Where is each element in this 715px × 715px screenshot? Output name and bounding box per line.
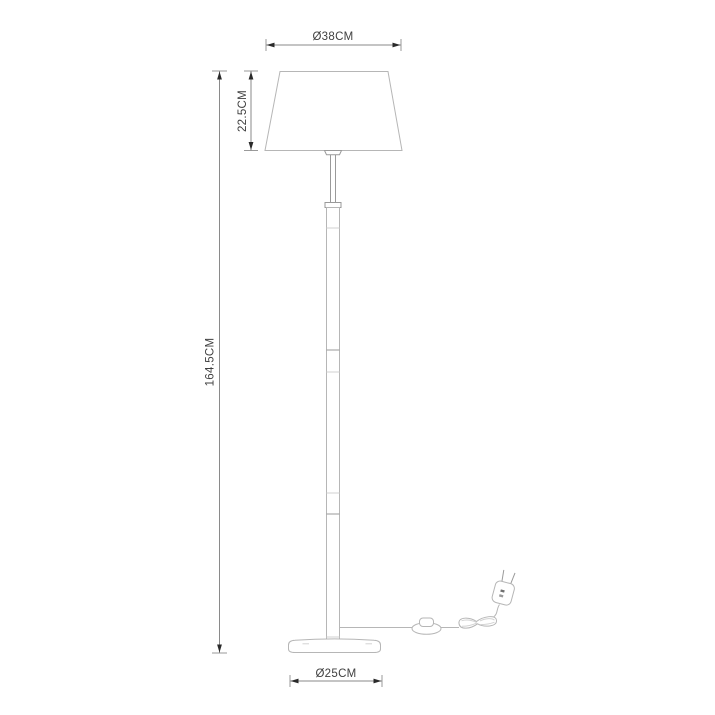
pole	[325, 203, 341, 641]
arrow-left-icon	[291, 679, 299, 684]
stem-rod	[331, 155, 336, 203]
lamp-height-label: 164.5CM	[205, 338, 217, 387]
power-plug	[491, 569, 519, 606]
arrow-down-icon	[217, 645, 222, 653]
lamp-base	[289, 639, 381, 653]
base-diameter-label: Ø25CM	[315, 668, 356, 680]
dimension-base-diameter: Ø25CM	[290, 668, 382, 687]
pole-body	[327, 208, 340, 641]
floor-lamp-drawing	[265, 72, 518, 653]
plug-prong-right	[511, 573, 515, 585]
diagram-canvas: Ø38CM 22.5CM 164.5CM Ø25CM	[0, 0, 715, 715]
shade-height-label: 22.5CM	[237, 90, 249, 132]
arrow-up-icon	[217, 72, 222, 80]
pole-top-cap	[325, 203, 341, 208]
shade-diameter-label: Ø38CM	[312, 31, 353, 43]
arrow-left-icon	[267, 43, 275, 48]
cable-coil	[459, 617, 497, 629]
arrow-right-icon	[374, 679, 382, 684]
foot-switch	[412, 618, 441, 634]
arrow-up-icon	[249, 72, 254, 80]
arrow-right-icon	[393, 43, 401, 48]
floor-lamp-dimension-diagram: Ø38CM 22.5CM 164.5CM Ø25CM	[0, 0, 715, 715]
dimension-shade-diameter: Ø38CM	[266, 31, 401, 51]
dimension-shade-height: 22.5CM	[237, 71, 258, 151]
shade-fitting	[325, 151, 342, 155]
plug-body	[491, 580, 516, 606]
arrow-down-icon	[249, 142, 254, 150]
dimension-lamp-height: 164.5CM	[205, 71, 228, 653]
plug-prong-left	[501, 570, 505, 582]
lamp-shade	[265, 72, 402, 151]
